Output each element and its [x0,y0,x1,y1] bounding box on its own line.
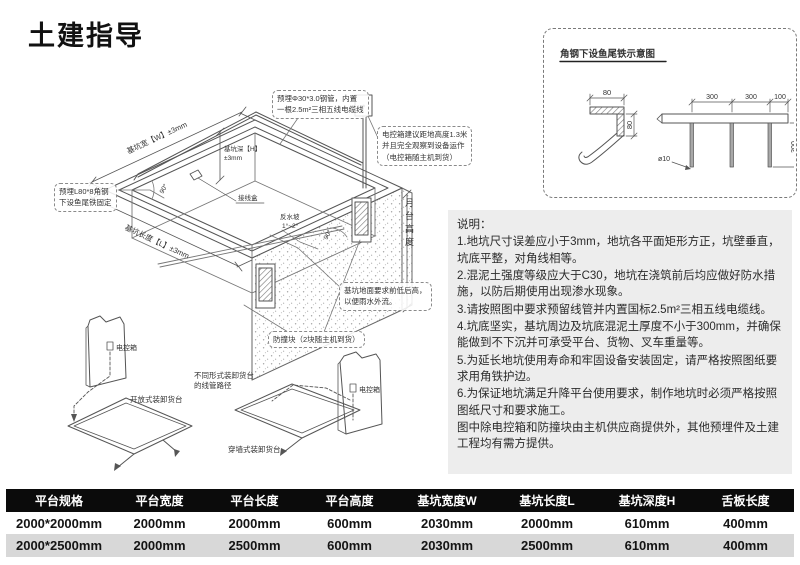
cell: 600mm [302,512,397,534]
bumper-left [256,264,275,308]
dim-depth-label-1: 基坑深【H】 [224,144,261,153]
open-dock-label: 开放式装卸货台 [130,394,183,404]
callout-pit-ground: 基坑地面要求前低后高， 以便雨水外流。 [339,282,432,311]
note-item: 3.请按照图中要求预留线管并内置国标2.5m²三相五线电缆线。 [457,302,783,318]
callout-embedded-pipe: 预埋Φ30*3.0钢管，内置 一根2.5m²三相五线电缆线 [272,90,369,119]
col-header-platform-spec: 平台规格 [6,489,112,512]
spec-table-header-row: 平台规格 平台宽度 平台长度 平台高度 基坑宽度W 基坑长度L 基坑深度H 舌板… [6,489,794,512]
callout-bumper: 防撞块（2块随主机到货） [268,331,365,348]
col-header-pit-width: 基坑宽度W [397,489,497,512]
cell: 400mm [697,534,794,557]
notes-panel: 说明： 1.地坑尺寸误差应小于3mm，地坑各平面矩形方正，坑壁垂直，坑底平整，对… [448,210,792,474]
callout-embedded-pipe-line1: 预埋Φ30*3.0钢管，内置 [277,93,364,104]
col-header-pit-length: 基坑长度L [497,489,597,512]
col-header-platform-width: 平台宽度 [112,489,207,512]
angle-steel-section [579,107,624,164]
callout-embedded-pipe-line2: 一根2.5m²三相五线电缆线 [277,104,364,115]
dim-depth-label-2: ±3mm [224,155,242,162]
note-item: 5.为延长地坑使用寿命和牢固设备安装固定，请严格按照图纸要求用角铁护边。 [457,353,783,386]
wall-dock-controlbox-label: 电控箱 [359,385,380,394]
cell: 600mm [302,534,397,557]
note-item: 1.地坑尺寸误差应小于3mm，地坑各平面矩形方正，坑壁垂直，坑底平整，对角线相等… [457,234,783,267]
cell: 2500mm [207,534,302,557]
note-item: 4.坑底坚实，基坑周边及坑底混泥土厚度不小于300mm，并确保能做到不下沉并可承… [457,319,783,352]
spec-table-row: 2000*2000mm 2000mm 2000mm 600mm 2030mm 2… [6,512,794,534]
cell: 2000mm [497,512,597,534]
cell: 2000mm [112,512,207,534]
fishtail-rods-figure [657,114,788,167]
cell: 2030mm [397,512,497,534]
slope-label-2: 1°~2° [282,222,299,230]
note-item: 2.混泥土强度等级应大于C30，地坑在浇筑前后均应做好防水措施，以防后期使用出现… [457,268,783,301]
callout-pit-ground-line2: 以便雨水外流。 [344,296,427,307]
callout-bumper-line1: 防撞块（2块随主机到货） [273,334,360,345]
fishtail-detail-drawing: 角钢下设鱼尾铁示意图 80 80 [544,29,794,194]
slope-label-1: 反水坡 [280,212,300,221]
callout-angle-steel-line1: 预埋L80*8角钢 [59,186,112,197]
spec-table: 平台规格 平台宽度 平台长度 平台高度 基坑宽度W 基坑长度L 基坑深度H 舌板… [6,489,794,557]
dim-300-a: 300 [706,94,718,101]
cell: 2000mm [207,512,302,534]
cell: 610mm [597,512,697,534]
dim-80-side: 80 [625,121,634,129]
callout-angle-steel: 预埋L80*8角钢 下设鱼尾铁固定 [54,183,117,212]
main-diagram: 基坑宽【W】±3mm 基坑长度【L】±3mm 基坑深【H】 ±3mm 90° 9… [30,58,460,488]
dock-height-dimension-label: 月台高度 [403,198,416,250]
callout-pit-ground-line1: 基坑地面要求前低后高， [344,285,427,296]
col-header-platform-length: 平台长度 [207,489,302,512]
dim-length-label: 基坑长度【L】±3mm [123,222,191,261]
cell: 2000*2500mm [6,534,112,557]
dim-300-b: 300 [745,94,757,101]
col-header-pit-depth: 基坑深度H [597,489,697,512]
col-header-platform-height: 平台高度 [302,489,397,512]
dim-rod-diameter: ø10 [658,156,670,163]
cell: 400mm [697,512,794,534]
cell: 2500mm [497,534,597,557]
cell: 610mm [597,534,697,557]
wall-dock-figure: 电控箱 穿墙式装卸货台 [228,352,382,456]
open-dock-figure: 电控箱 开放式装卸货台 [68,316,192,471]
bumper-right [352,198,371,242]
note-item: 6.为保证地坑满足升降平台使用要求，制作地坑时必须严格按照图纸尺寸和要求施工。 [457,386,783,419]
callout-angle-steel-line2: 下设鱼尾铁固定 [59,197,112,208]
cell: 2000mm [112,534,207,557]
conduit-caption-1: 不同形式装卸货台 [194,370,254,380]
dim-100: 100 [774,94,786,101]
fishtail-rods-dims: 300 300 100 300 ø10 [658,94,794,170]
spec-table-row: 2000*2500mm 2000mm 2500mm 600mm 2030mm 2… [6,534,794,557]
cell: 2000*2000mm [6,512,112,534]
detail-title: 角钢下设鱼尾铁示意图 [560,48,655,60]
col-header-lip-length: 舌板长度 [697,489,794,512]
conduit-path-caption: 不同形式装卸货台 的线管路径 [194,370,254,390]
notes-title: 说明： [457,217,783,233]
wall-dock-label: 穿墙式装卸货台 [228,444,281,454]
page-title: 土建指导 [28,14,144,53]
callout-control-box-line3: （电控箱随主机到货） [382,152,467,163]
conduit-caption-2: 的线管路径 [194,380,232,390]
dim-300-depth: 300 [791,141,794,153]
callout-control-box-line2: 并且完全观察到设备运作 [382,140,467,151]
callout-control-box-line1: 电控箱建议距地高度1.3米 [382,129,467,140]
dim-80-top: 80 [603,88,611,97]
fishtail-detail-box: 角钢下设鱼尾铁示意图 80 80 [543,28,797,198]
junction-box-label: 接线盒 [238,193,258,202]
callout-control-box: 电控箱建议距地高度1.3米 并且完全观察到设备运作 （电控箱随主机到货） [377,126,472,166]
note-item: 图中除电控箱和防撞块由主机供应商提供外，其他预埋件及土建工程均有需方提供。 [457,420,783,453]
dim-width-label: 基坑宽【W】±3mm [125,119,188,156]
open-dock-controlbox-label: 电控箱 [116,343,137,352]
cell: 2030mm [397,534,497,557]
